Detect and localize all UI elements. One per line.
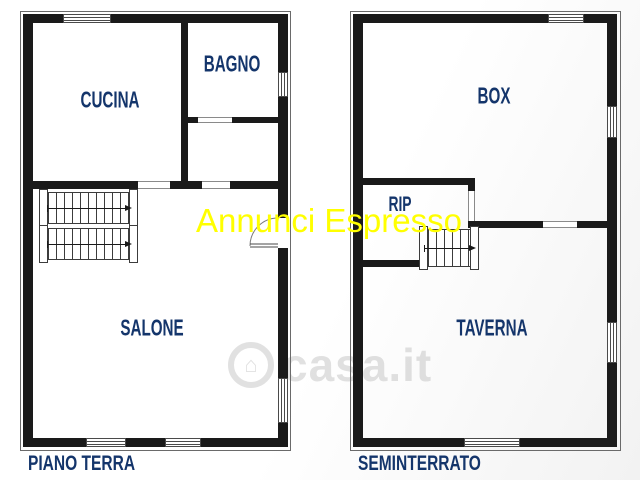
wall-segment — [188, 117, 198, 123]
door-opening — [202, 181, 230, 189]
wall-segment — [232, 117, 278, 123]
window — [607, 106, 617, 138]
floor-caption-seminterrato: SEMINTERRATO — [358, 452, 481, 476]
window — [464, 438, 520, 447]
window — [278, 378, 288, 423]
window — [86, 438, 126, 447]
wall-segment — [520, 438, 617, 447]
stair-line-tick — [47, 205, 48, 212]
wall-segment — [201, 438, 288, 447]
wall-segment — [607, 363, 617, 447]
wall-segment — [111, 14, 288, 23]
wall-segment — [468, 178, 475, 191]
window — [63, 14, 111, 23]
window — [607, 322, 617, 363]
wall-segment — [278, 97, 288, 218]
room-label-bagno: BAGNO — [204, 51, 261, 78]
wall-segment — [23, 14, 33, 447]
door-opening — [198, 117, 232, 123]
room-label-cucina: CUCINA — [80, 87, 139, 114]
stair-arrow-icon — [125, 205, 132, 211]
window — [278, 72, 288, 97]
wall-segment — [362, 178, 468, 185]
stair-direction-line — [424, 248, 473, 249]
wall-segment — [23, 438, 86, 447]
wall-segment — [577, 221, 607, 228]
door-opening — [138, 181, 170, 189]
stair-arrow-icon — [469, 245, 476, 251]
wall-segment — [181, 23, 188, 189]
floorplan-image: ⌂ casa.it — [0, 0, 640, 480]
stair-direction-line — [47, 208, 131, 209]
wall-segment — [230, 181, 278, 189]
door-opening — [543, 221, 577, 228]
wall-segment — [170, 181, 202, 189]
window — [548, 14, 584, 23]
wall-segment — [607, 14, 617, 106]
wall-segment — [353, 14, 548, 23]
wall-segment — [278, 14, 288, 72]
staircase-run — [40, 228, 137, 260]
staircase-run — [40, 192, 137, 224]
wall-segment — [30, 181, 138, 189]
wall-segment — [353, 438, 464, 447]
wall-segment — [278, 248, 288, 378]
stair-line-tick — [47, 241, 48, 248]
room-label-salone: SALONE — [120, 315, 183, 342]
wall-segment — [126, 438, 165, 447]
floor-caption-piano-terra: PIANO TERRA — [28, 452, 135, 476]
stair-direction-line — [47, 244, 131, 245]
wall-segment — [362, 260, 420, 267]
window — [165, 438, 201, 447]
agency-watermark: Annunci Espresso — [196, 202, 462, 240]
stair-arrow-icon — [125, 241, 132, 247]
door-opening — [468, 191, 475, 224]
stair-line-tick — [424, 245, 425, 252]
wall-segment — [607, 138, 617, 322]
wall-segment — [468, 221, 543, 228]
room-label-box: BOX — [478, 83, 511, 110]
room-label-taverna: TAVERNA — [456, 315, 527, 342]
